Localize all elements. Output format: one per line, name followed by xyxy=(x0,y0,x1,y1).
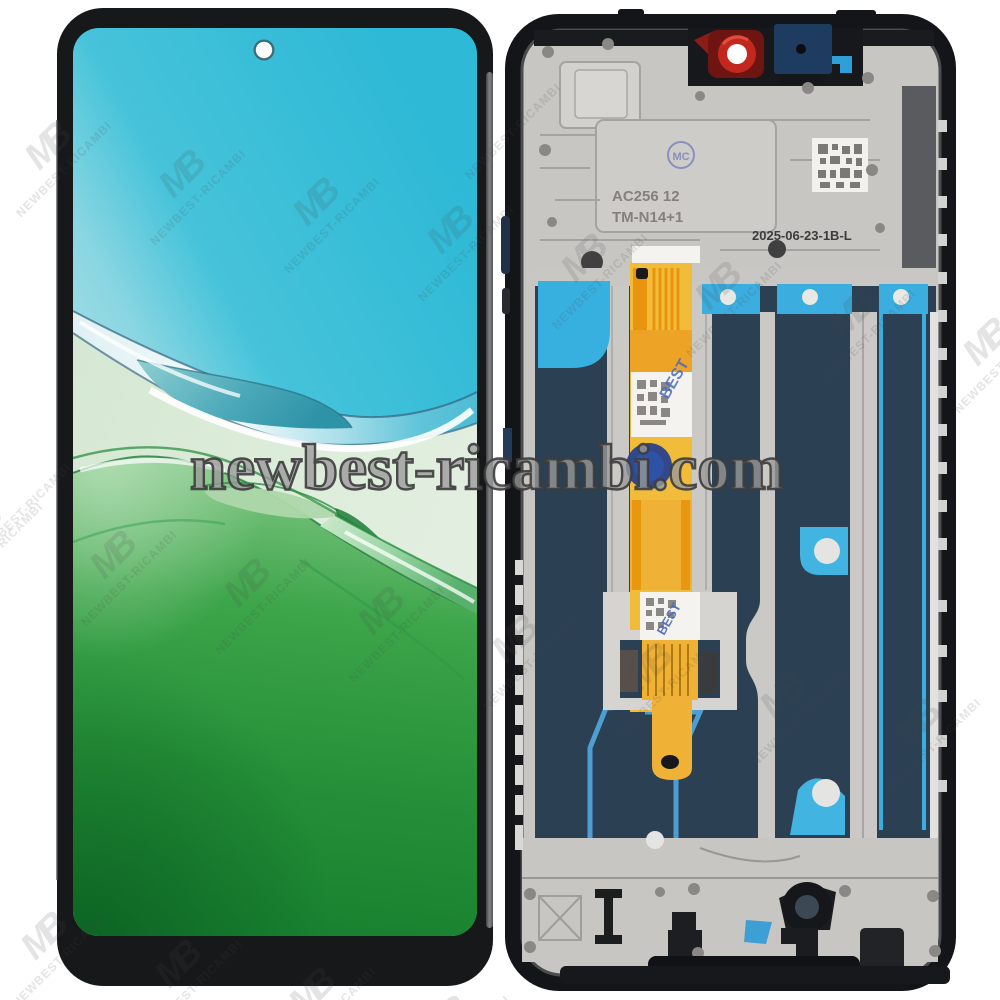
svg-text:2025-06-23-1B-L: 2025-06-23-1B-L xyxy=(752,228,852,243)
svg-text:AC256 12: AC256 12 xyxy=(612,188,680,205)
svg-text:NEWBEST-RICAMBI: NEWBEST-RICAMBI xyxy=(411,993,513,1000)
svg-text:newbest-ricambi.com: newbest-ricambi.com xyxy=(190,432,784,504)
svg-text:TM-N14+1: TM-N14+1 xyxy=(612,209,683,226)
svg-text:MB: MB xyxy=(414,987,478,1000)
svg-text:MC: MC xyxy=(672,151,689,163)
